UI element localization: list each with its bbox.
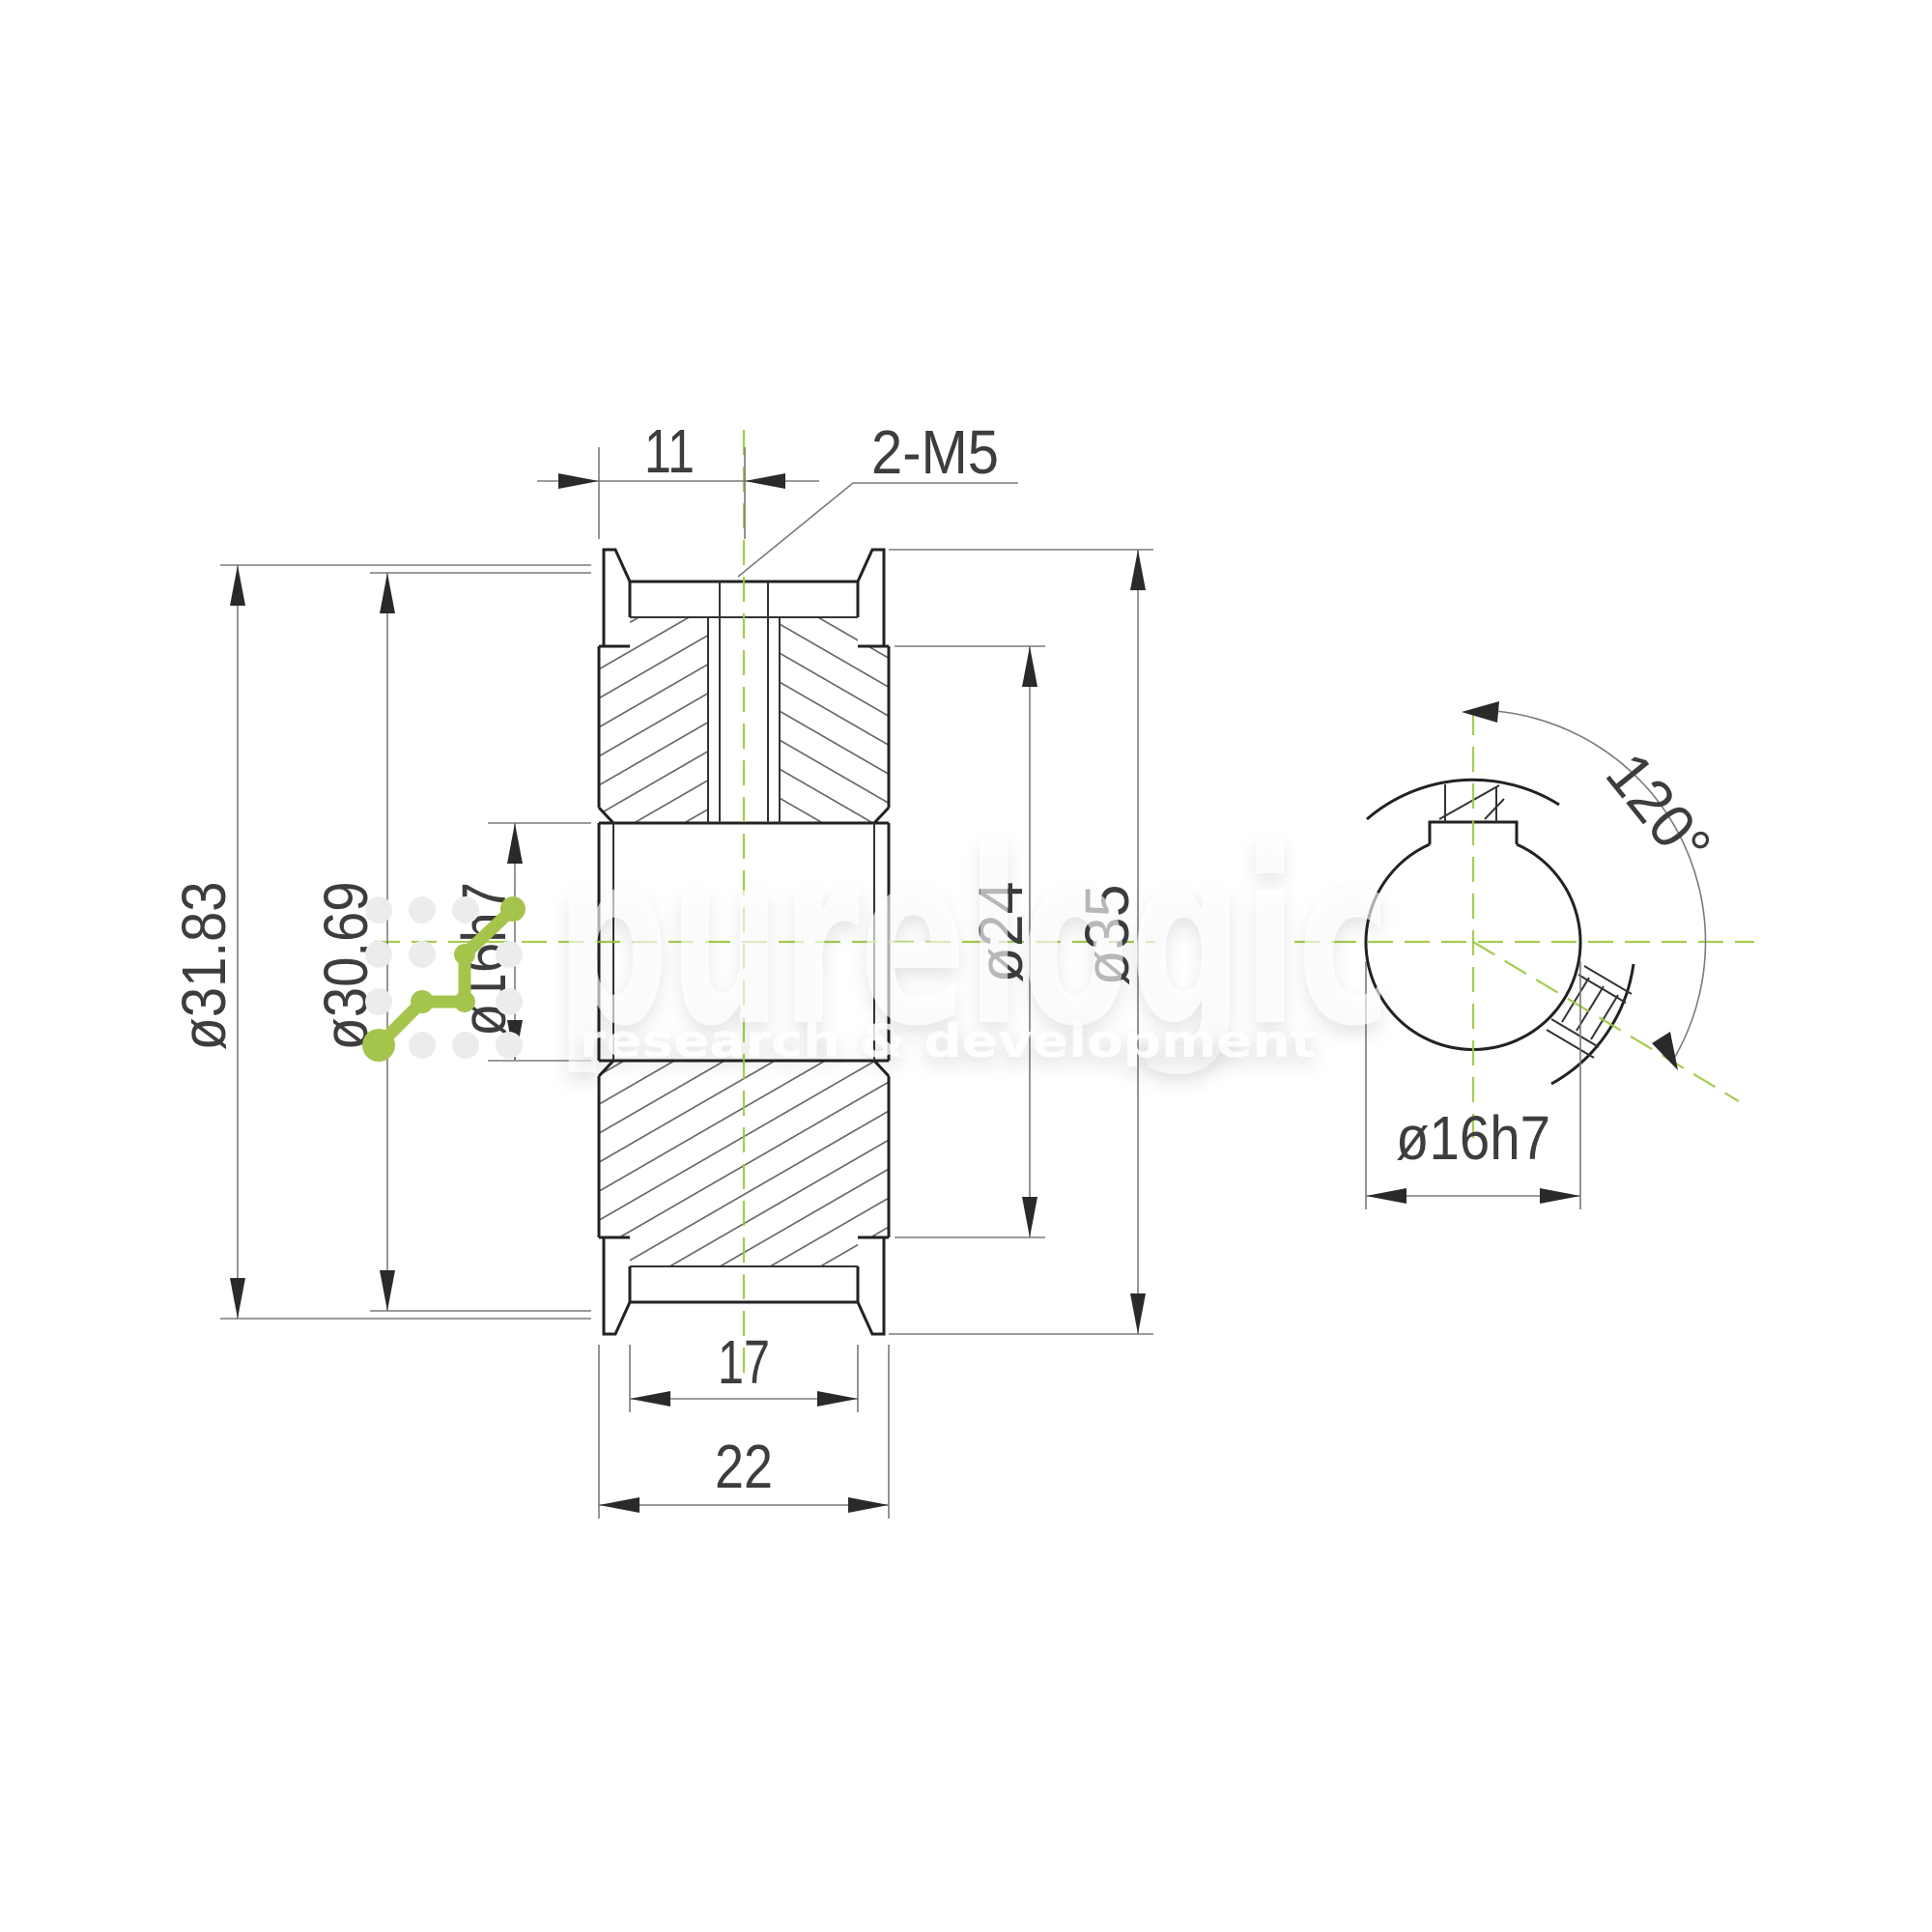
belt-width-label: 17 <box>718 1327 770 1397</box>
logo-node <box>454 991 475 1012</box>
dim-belt-width: 17 <box>630 1327 858 1412</box>
dim-offset-label: 11 <box>644 416 695 486</box>
thread-label: 2-M5 <box>871 417 999 487</box>
dim-screw-angle: 120° <box>1462 701 1724 1070</box>
rim-arc-top <box>1367 780 1559 819</box>
pitch-diameter-label: ø31.83 <box>169 882 239 1051</box>
screw-axis-line <box>1473 942 1739 1101</box>
overall-width-label: 22 <box>715 1432 773 1501</box>
logo-node <box>500 896 526 922</box>
dim-offset-11: 11 <box>537 416 819 539</box>
set-screw-top <box>1439 784 1504 822</box>
drawing-svg: 11 2-M5 ø31.83 ø30.69 <box>0 0 1932 1932</box>
logo-node <box>362 1029 395 1062</box>
bore-diameter-side-label: ø16h7 <box>1396 1103 1550 1173</box>
leader-thread: 2-M5 <box>738 417 1018 577</box>
logo-node <box>454 944 475 965</box>
drawing-page: 11 2-M5 ø31.83 ø30.69 <box>0 0 1932 1932</box>
logo-node <box>411 990 434 1013</box>
watermark-tagline: research & development <box>580 1015 1316 1068</box>
screw-angle-label: 120° <box>1593 740 1725 880</box>
watermark: purelogic research & development <box>555 798 1391 1079</box>
